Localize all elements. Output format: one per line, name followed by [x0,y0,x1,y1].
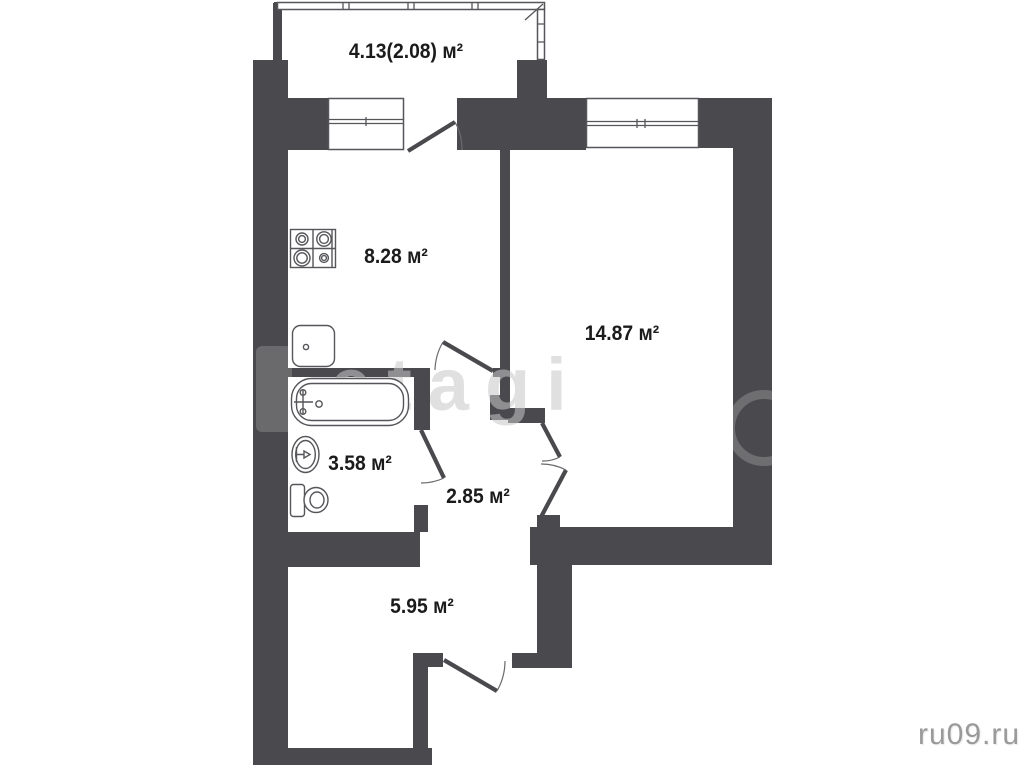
kitchen-door-icon [435,342,493,371]
kitchen-window-icon [329,99,404,150]
washbasin-icon [292,437,319,473]
room-label-kitchen: 8.28 м² [364,245,428,269]
toilet-icon [291,485,329,517]
stove-icon [291,230,336,268]
room-label-hallway: 2.85 м² [446,485,510,509]
bathtub-icon [292,379,409,426]
room-label-corridor: 5.95 м² [390,595,454,619]
living-room-double-door-icon [541,423,566,517]
kitchen-sink-icon [293,326,335,367]
balcony-door-icon [408,122,462,151]
room-label-balcony: 4.13(2.08) м² [349,40,463,64]
floor-plan-canvas: etagi [0,0,1024,768]
room-label-bathroom: 3.58 м² [328,452,392,476]
entrance-door-icon [444,660,505,691]
bathroom-door-icon [421,430,444,483]
living-room-window-icon [587,99,699,148]
room-label-living: 14.87 м² [585,322,659,346]
watermark-site: ru09.ru [918,718,1020,752]
plan-linework [0,0,1024,768]
